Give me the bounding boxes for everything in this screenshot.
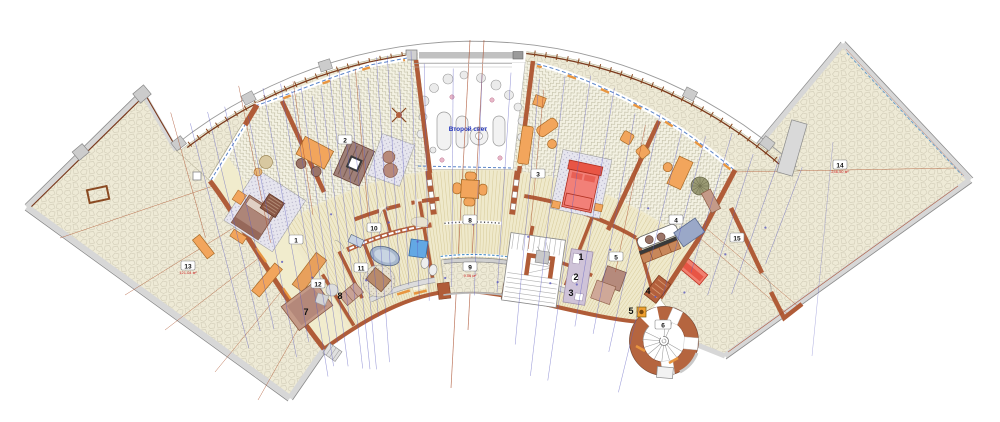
svg-text:12: 12 [314,282,322,289]
svg-text:11: 11 [358,266,365,273]
svg-text:2: 2 [343,138,347,145]
svg-text:3: 3 [568,288,573,298]
svg-text:4: 4 [645,286,650,296]
svg-text:7: 7 [303,307,308,317]
svg-text:1: 1 [578,252,583,262]
svg-text:3: 3 [536,172,540,179]
svg-text:8: 8 [337,291,342,301]
svg-text:121.04 м²: 121.04 м² [179,270,197,275]
svg-text:246.50 м²: 246.50 м² [831,169,849,174]
svg-text:15: 15 [733,236,741,243]
svg-text:8: 8 [468,218,472,225]
svg-text:4: 4 [674,218,678,225]
svg-text:5: 5 [614,255,618,262]
svg-text:10: 10 [370,226,378,233]
svg-text:9.06 м²: 9.06 м² [464,273,478,278]
svg-text:5: 5 [628,306,633,316]
svg-text:9: 9 [468,265,472,272]
svg-text:1: 1 [294,238,298,245]
svg-text:6: 6 [661,323,665,330]
svg-text:Второй свет: Второй свет [449,125,487,133]
svg-text:2: 2 [573,272,578,282]
